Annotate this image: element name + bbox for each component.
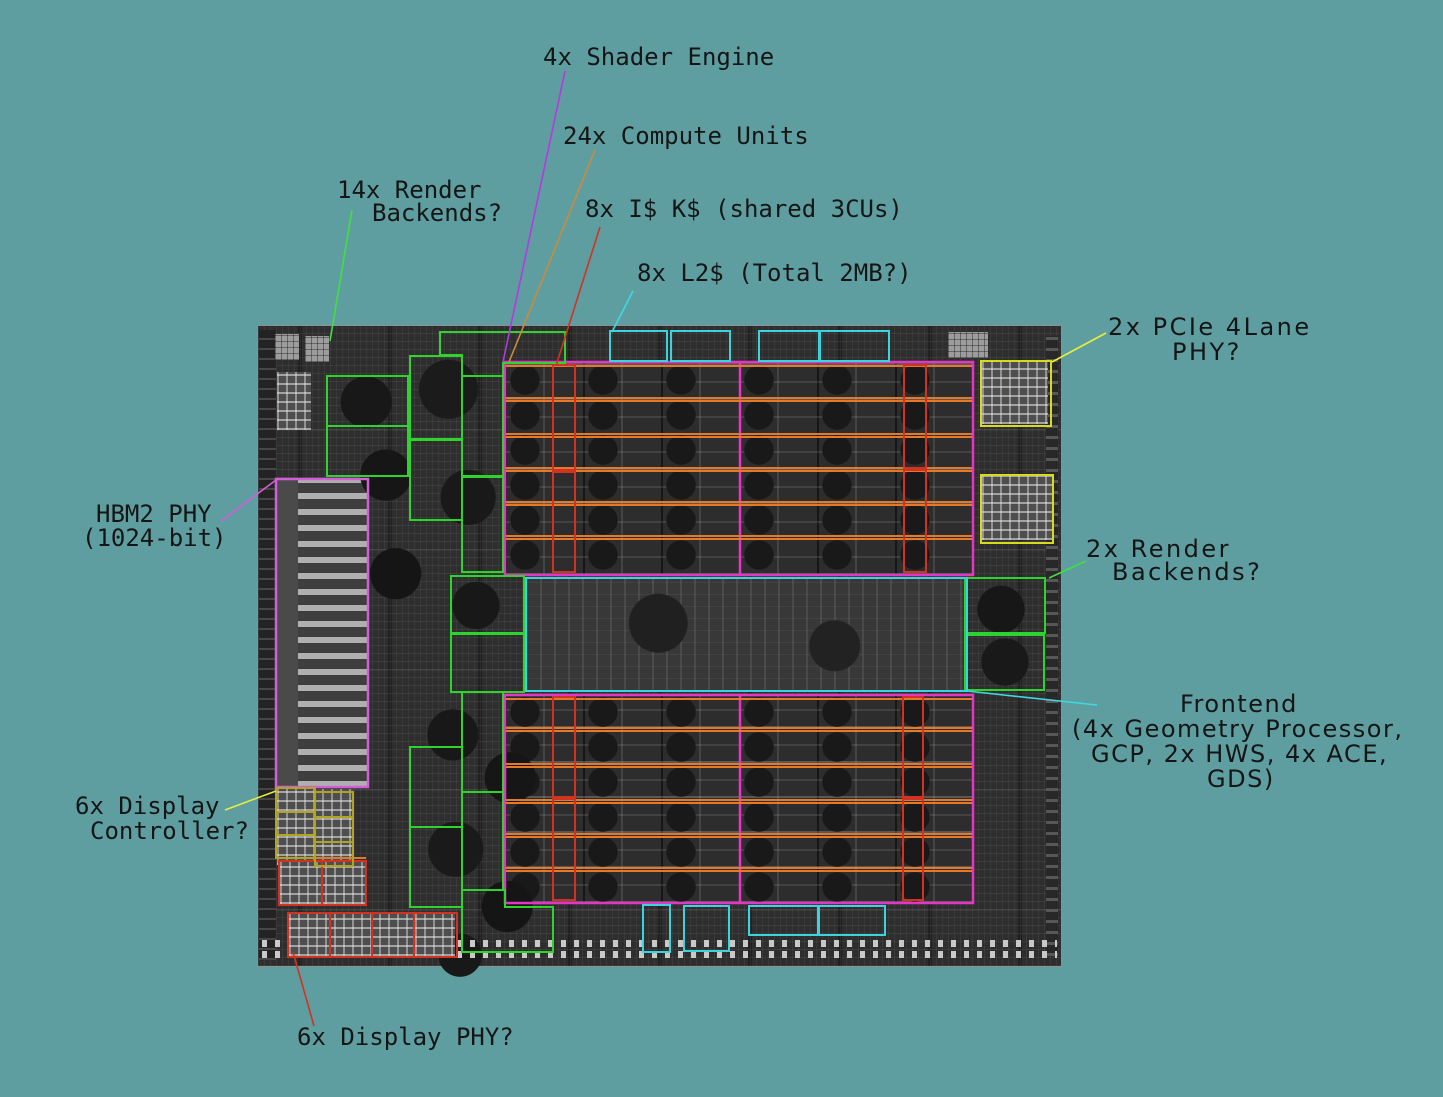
render-backends-2-pointer-line [1049,561,1086,578]
label-render-backends-14-line2: Backends? [372,200,502,226]
l2-cache-box [749,906,818,935]
render-backend-box [410,827,462,907]
label-display-phy: 6x Display PHY? [297,1024,514,1050]
display-controller-box [276,788,315,812]
l2-cache-box [759,331,819,361]
label-l2-cache: 8x L2$ (Total 2MB?) [637,260,912,286]
label-render-backends-2-line2: Backends? [1112,559,1262,585]
render-backend-box [451,634,524,692]
annotated-die-diagram: 4x Shader Engine 24x Compute Units 14x R… [0,0,1443,1097]
pcie-phy-box [981,361,1051,426]
display-controller-pointer-line [225,791,276,810]
pcie-phy-box [981,475,1053,543]
render-backend-box [462,477,503,572]
display-controller-box [315,842,353,866]
display-phy-box [288,913,330,957]
display-phy-box [322,861,366,905]
display-phy-box [372,913,414,957]
frontend-outline [526,578,967,691]
render-backend-box-right [965,635,1044,690]
icache-box [553,697,575,797]
display-controller-box [315,792,353,817]
icache-box [553,365,575,470]
icache-box [553,799,575,900]
pcie-phy-outlines [981,361,1053,543]
icache-box [904,365,926,468]
l2-pointer-line [612,291,633,332]
l2-and-frontend-outlines [526,331,967,952]
render-backend-box [410,440,462,520]
render-backend-outlines [327,332,1045,952]
l2-cache-box [643,905,670,952]
render-backend-box [410,356,462,439]
icache-box [903,697,923,797]
render-backends-pointer-line [330,210,352,341]
render-backend-box [462,890,553,952]
label-instruction-cache: 8x I$ K$ (shared 3CUs) [585,196,903,222]
l2-cache-box [819,906,885,935]
render-backend-box [451,576,524,633]
icache-box [904,470,926,572]
display-controller-box [276,835,315,858]
hbm2-phy-outline [276,479,368,787]
label-compute-units: 24x Compute Units [563,123,809,149]
display-controller-outlines [276,788,353,866]
l2-cache-box [684,906,729,951]
display-controller-box [276,812,315,835]
label-frontend-line4: GDS) [1207,766,1275,792]
l2-cache-box [671,331,730,361]
display-phy-box [414,913,457,957]
render-backend-box [327,426,408,476]
l2-cache-box [820,331,889,361]
compute-units-pointer-line [509,150,595,362]
label-hbm2-line2: (1024-bit) [82,525,227,551]
frontend-pointer-line [967,691,1097,705]
render-backend-box [462,692,503,792]
label-frontend-line1: Frontend [1180,691,1298,717]
render-backend-box [462,792,503,890]
render-backend-box [410,747,462,827]
pcie-pointer-line [1052,333,1106,362]
render-backend-box-right [965,578,1045,633]
icache-pointer-line [556,227,600,366]
display-phy-box [330,913,372,957]
shader-engine-pointer-line [503,71,565,362]
l2-cache-box [610,331,667,361]
label-pcie-line1: 2x PCIe 4Lane [1108,314,1312,340]
label-frontend-line2: (4x Geometry Processor, [1072,716,1404,742]
display-phy-outlines [279,861,457,957]
render-backend-box [440,332,565,376]
render-backend-box [327,376,408,426]
hbm2-pointer-line [221,480,276,521]
icache-box [903,799,923,900]
label-display-controller-line2: Controller? [90,818,249,844]
display-phy-pointer-line [293,952,314,1026]
render-backend-box [462,376,503,476]
compute-unit-row-lines [276,366,972,871]
display-controller-box [315,817,353,842]
label-display-controller-line1: 6x Display [75,793,220,819]
icache-box [553,472,575,572]
label-pcie-line2: PHY? [1172,339,1242,365]
label-frontend-line3: GCP, 2x HWS, 4x ACE, [1091,741,1388,767]
label-shader-engine: 4x Shader Engine [543,44,774,70]
display-phy-box [279,861,322,905]
